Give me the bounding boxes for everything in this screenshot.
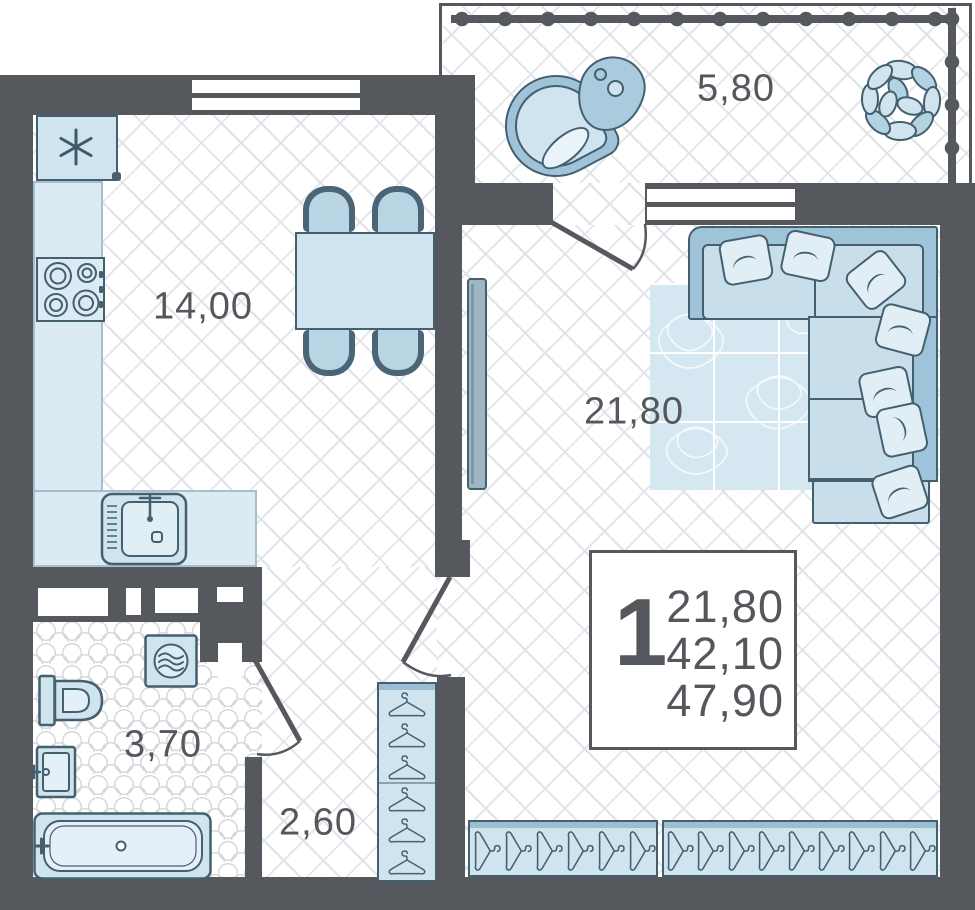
living-wardrobe-left [468, 820, 658, 877]
kitchen-window [190, 78, 362, 112]
hallway-area-label: 2,60 [279, 802, 357, 845]
fridge [36, 115, 118, 181]
chair [372, 330, 424, 376]
ventilation-shaft [217, 587, 243, 602]
cup-icon [594, 68, 607, 81]
plant [850, 48, 952, 150]
hanger-icon [385, 850, 429, 878]
hanger-icon [595, 828, 625, 874]
hanger-icon [845, 828, 875, 874]
hanger-icon [471, 828, 501, 874]
bathroom-area-label: 3,70 [124, 724, 202, 767]
pillow [717, 233, 774, 287]
living-area-value: 21,80 [666, 583, 784, 630]
apartment-info-box: 1 21,80 42,10 47,90 [589, 550, 797, 750]
bowl-icon [607, 80, 624, 97]
chair [303, 186, 355, 232]
rooms-count: 1 [614, 585, 667, 681]
hanger-icon [725, 828, 755, 874]
hanger-icon [385, 692, 429, 720]
kitchen-sink [100, 492, 188, 566]
pillow [779, 228, 837, 283]
balcony-railing-top [451, 8, 951, 30]
hanger-icon [906, 828, 936, 874]
hanger-icon [502, 828, 532, 874]
pillow [874, 401, 929, 459]
hanger-icon [533, 828, 563, 874]
floor-plan: 14,00 21,80 5,80 3,70 2,60 1 21,80 42,10… [0, 0, 975, 910]
wall-bathroom-right [245, 757, 262, 877]
hallway-living-door [395, 570, 473, 688]
wall-hall-living-divider [437, 677, 465, 882]
balcony-door [543, 216, 655, 280]
snowflake-icon [38, 117, 115, 178]
balcony-frame-left [439, 3, 442, 77]
hanger-icon [385, 755, 429, 783]
fridge-hinge-dot [112, 172, 121, 181]
tv [467, 278, 487, 490]
living-area-label: 21,80 [584, 391, 684, 434]
wall-bottom [0, 877, 975, 910]
apartment-area-value: 42,10 [666, 630, 784, 677]
wall-living-balcony-right [797, 183, 975, 225]
kitchen-area-label: 14,00 [153, 286, 253, 329]
wall-right [940, 183, 975, 877]
chair [303, 330, 355, 376]
hanger-icon [815, 828, 845, 874]
balcony-frame-right [969, 3, 972, 185]
balcony-area-label: 5,80 [697, 68, 775, 111]
total-area-value: 47,90 [666, 677, 784, 724]
living-wardrobe-right [662, 820, 938, 877]
ventilation-shaft [126, 588, 141, 615]
hanger-icon [785, 828, 815, 874]
ventilation-shaft [38, 588, 108, 616]
living-window [645, 187, 797, 222]
hanger-icon [385, 723, 429, 751]
washing-machine [144, 634, 198, 688]
hanger-icon [694, 828, 724, 874]
hallway-wardrobe [377, 682, 437, 882]
hanger-icon [755, 828, 785, 874]
toilet [38, 673, 105, 728]
balcony-frame-top [440, 3, 972, 6]
hanger-icon [385, 787, 429, 815]
bathroom-sink [28, 745, 77, 799]
stove [36, 257, 105, 322]
ventilation-shaft [155, 588, 198, 613]
hanger-icon [626, 828, 656, 874]
hanger-icon [876, 828, 906, 874]
hanger-icon [564, 828, 594, 874]
chair [372, 186, 424, 232]
hanger-icon [385, 818, 429, 846]
hanger-icon [664, 828, 694, 874]
bathtub [33, 812, 212, 880]
dining-table [295, 232, 435, 330]
bathroom-door [243, 653, 317, 765]
ventilation-shaft [218, 643, 242, 686]
